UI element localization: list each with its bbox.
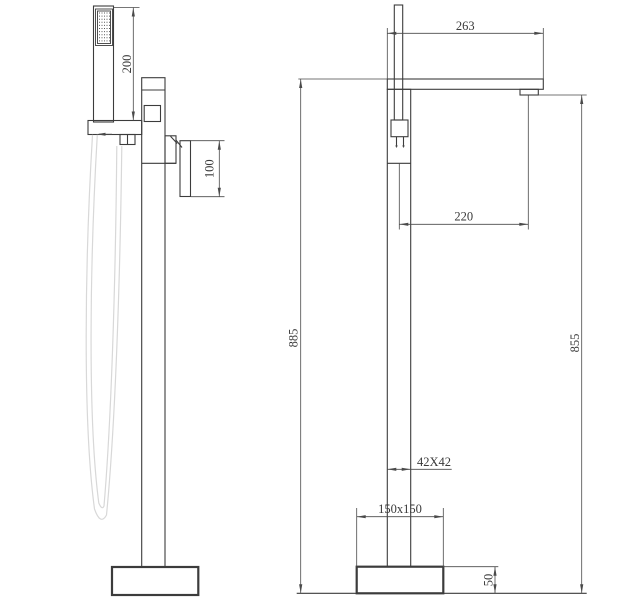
spray-nozzle-dots <box>100 13 110 43</box>
dim-total-height: 885 <box>287 79 388 593</box>
spout-outlet <box>520 89 538 95</box>
front-view: 263 220 885 855 42X42 <box>287 5 587 593</box>
base-plate-side <box>112 567 198 595</box>
spray-face-outer <box>96 9 113 46</box>
lever-handle-grip <box>180 141 191 197</box>
handshower-bracket <box>88 121 142 135</box>
side-view: 200 100 <box>86 6 224 595</box>
diverter-button <box>144 106 160 122</box>
dim-220-label: 220 <box>454 209 473 223</box>
dim-263-lines <box>387 28 543 79</box>
dim-50-label: 50 <box>482 574 496 587</box>
dim-column-section: 42X42 <box>387 455 451 471</box>
dim-885-lines <box>298 79 387 593</box>
technical-drawing-svg: 200 100 263 <box>0 0 635 600</box>
base-plate-front <box>357 567 444 594</box>
slider-block <box>391 120 408 137</box>
dim-base-height: 50 <box>443 567 498 594</box>
dim-spout-reach: 263 <box>387 19 543 79</box>
riser-column-side <box>142 78 165 567</box>
dim-263-label: 263 <box>456 19 475 33</box>
dim-base-plate: 150x150 <box>357 502 444 567</box>
dim-outlet-height: 855 <box>538 95 586 593</box>
dim-handle-height: 100 <box>191 141 225 197</box>
dim-handshower-length: 200 <box>114 8 140 121</box>
bracket-prongs <box>397 137 404 146</box>
bracket-prong-tips-icon <box>395 146 405 149</box>
dim-855-label: 855 <box>568 334 582 353</box>
dim-150x150-lines <box>357 508 444 567</box>
dim-200-label: 200 <box>120 55 134 74</box>
slide-rail-rod <box>394 5 402 120</box>
spout-arm <box>387 79 543 89</box>
dim-spout-outlet-offset: 220 <box>399 96 528 230</box>
dim-150x150-label: 150x150 <box>378 502 422 516</box>
dim-100-label: 100 <box>203 159 217 178</box>
drawing-canvas: 200 100 263 <box>0 0 635 600</box>
dim-42x42-label: 42X42 <box>417 455 451 469</box>
dim-885-label: 885 <box>287 329 301 348</box>
hose-inner-edge <box>91 135 117 508</box>
riser-column-front <box>387 89 410 566</box>
